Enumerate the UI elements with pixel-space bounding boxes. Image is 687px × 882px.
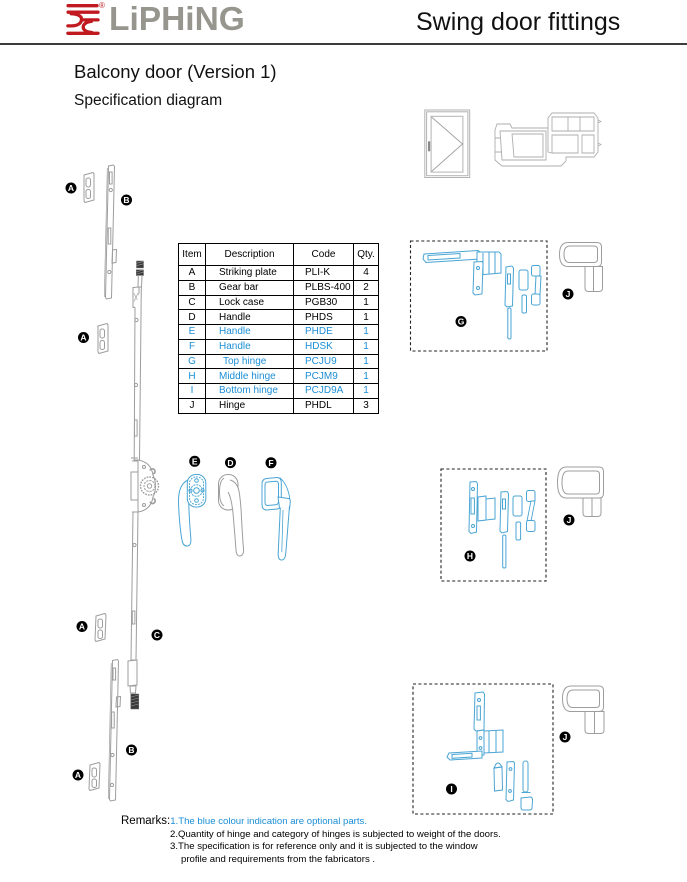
svg-text:D: D [227,458,233,468]
svg-text:H: H [467,551,473,561]
svg-text:I: I [450,784,452,794]
svg-text:C: C [154,630,160,640]
svg-text:J: J [566,289,571,299]
svg-text:A: A [80,333,86,343]
svg-text:A: A [68,183,74,193]
svg-text:F: F [268,458,273,468]
svg-text:J: J [563,732,568,742]
svg-text:B: B [128,745,134,755]
svg-text:A: A [75,770,81,780]
svg-text:A: A [79,622,85,632]
svg-text:G: G [458,317,465,327]
svg-text:E: E [192,457,198,467]
svg-text:B: B [123,195,129,205]
svg-text:J: J [567,515,572,525]
